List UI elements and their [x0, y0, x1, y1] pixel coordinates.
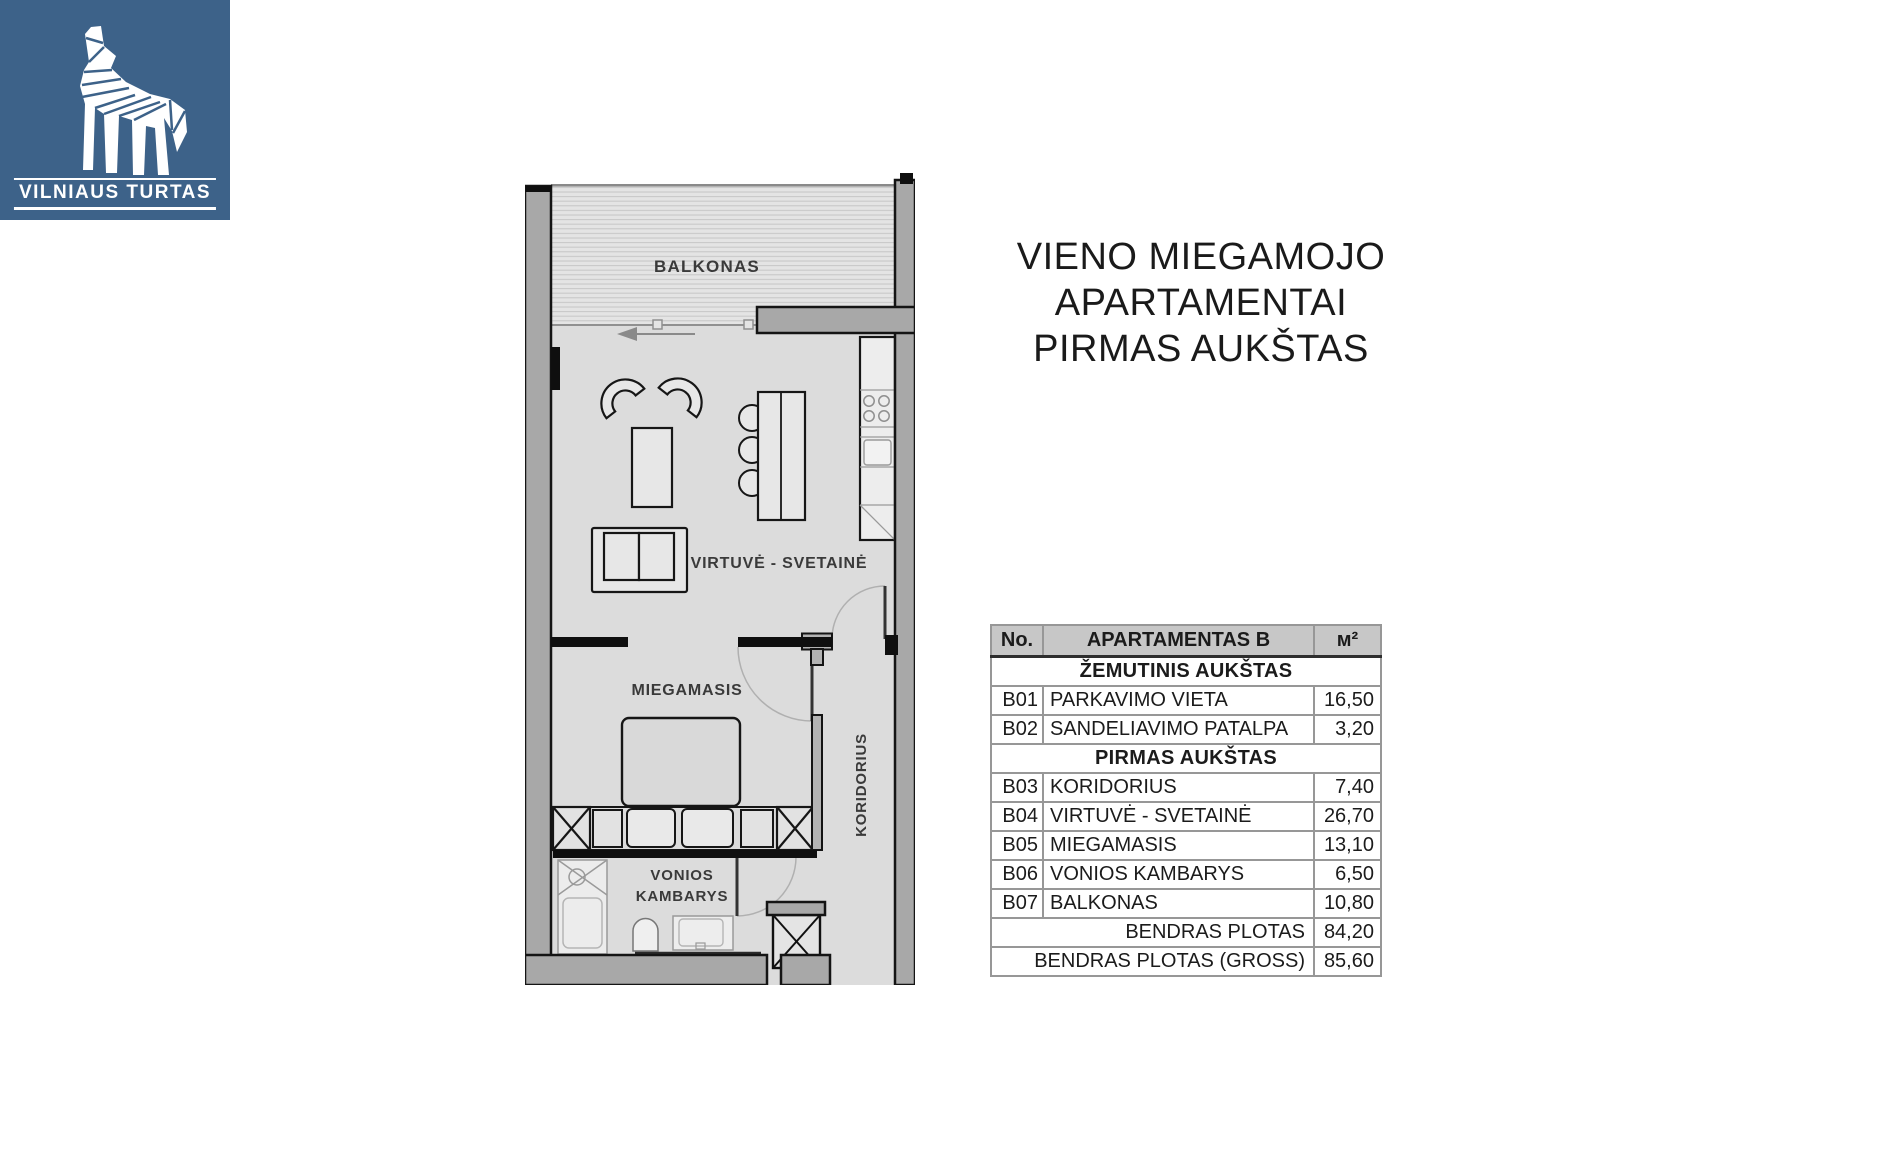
area-table-body: No.APARTAMENTAS Bм²ŽEMUTINIS AUKŠTASB01P…: [991, 625, 1381, 976]
cell-no: B01: [991, 686, 1043, 715]
room-label-kitchen-living: VIRTUVĖ - SVETAINĖ: [691, 554, 868, 572]
pillow: [682, 809, 733, 847]
shower-icon: [558, 860, 607, 954]
total-value: 84,20: [1314, 918, 1381, 947]
room-label-balcony: BALKONAS: [654, 257, 760, 276]
nightstand: [741, 810, 773, 847]
left-wall: [525, 186, 551, 985]
bed: [622, 718, 740, 806]
sofa: [592, 528, 687, 592]
table-row: B02SANDELIAVIMO PATALPA3,20: [991, 715, 1381, 744]
cell-name: KORIDORIUS: [1043, 773, 1314, 802]
cell-area: 16,50: [1314, 686, 1381, 715]
cell-area: 6,50: [1314, 860, 1381, 889]
col-header-m2: м²: [1314, 625, 1381, 657]
section-row: PIRMAS AUKŠTAS: [991, 744, 1381, 773]
cell-area: 10,80: [1314, 889, 1381, 918]
toilet-icon: [633, 919, 658, 952]
cell-name: BALKONAS: [1043, 889, 1314, 918]
cell-area: 13,10: [1314, 831, 1381, 860]
right-wall: [895, 180, 915, 985]
cell-name: MIEGAMASIS: [1043, 831, 1314, 860]
total-label: BENDRAS PLOTAS: [991, 918, 1314, 947]
cell-no: B05: [991, 831, 1043, 860]
cell-name: PARKAVIMO VIETA: [1043, 686, 1314, 715]
cell-name: VIRTUVĖ - SVETAINĖ: [1043, 802, 1314, 831]
company-logo: VILNIAUS TURTAS: [0, 0, 230, 220]
title-line-1: VIENO MIEGAMOJO: [956, 234, 1446, 280]
cell-no: B07: [991, 889, 1043, 918]
cell-no: B02: [991, 715, 1043, 744]
table-row: B04VIRTUVĖ - SVETAINĖ26,70: [991, 802, 1381, 831]
room-label-bedroom: MIEGAMASIS: [631, 682, 742, 699]
table-row: B07BALKONAS10,80: [991, 889, 1381, 918]
section-label: ŽEMUTINIS AUKŠTAS: [991, 657, 1381, 687]
table-row: B05MIEGAMASIS13,10: [991, 831, 1381, 860]
total-value: 85,60: [1314, 947, 1381, 976]
cell-area: 26,70: [1314, 802, 1381, 831]
coffee-table: [632, 428, 672, 507]
col-header-apartment: APARTAMENTAS B: [1043, 625, 1314, 657]
cell-area: 7,40: [1314, 773, 1381, 802]
room-label-bathroom-1: VONIOS: [650, 867, 713, 884]
total-row: BENDRAS PLOTAS84,20: [991, 918, 1381, 947]
table-row: B01PARKAVIMO VIETA16,50: [991, 686, 1381, 715]
total-row: BENDRAS PLOTAS (GROSS)85,60: [991, 947, 1381, 976]
cell-area: 3,20: [1314, 715, 1381, 744]
section-row: ŽEMUTINIS AUKŠTAS: [991, 657, 1381, 687]
cell-no: B04: [991, 802, 1043, 831]
brand-name: VILNIAUS TURTAS: [14, 178, 216, 210]
total-label: BENDRAS PLOTAS (GROSS): [991, 947, 1314, 976]
cell-name: SANDELIAVIMO PATALPA: [1043, 715, 1314, 744]
title-line-3: PIRMAS AUKŠTAS: [956, 326, 1446, 372]
floor-plan: BALKONAS VIRTUVĖ - SVETAINĖ MIEGAMASIS V…: [525, 150, 915, 985]
title-line-2: APARTAMENTAI: [956, 280, 1446, 326]
page: { "logo": { "brand": "VILNIAUS TURTAS", …: [0, 0, 1900, 1165]
pillow: [627, 809, 675, 847]
nightstand: [593, 810, 622, 847]
bath-sink-icon: [673, 916, 733, 950]
page-title: VIENO MIEGAMOJO APARTAMENTAI PIRMAS AUKŠ…: [956, 234, 1446, 372]
cell-no: B03: [991, 773, 1043, 802]
table-row: B06VONIOS KAMBARYS6,50: [991, 860, 1381, 889]
col-header-no: No.: [991, 625, 1043, 657]
room-label-bathroom-2: KAMBARYS: [636, 888, 729, 905]
window-marker: [551, 347, 560, 390]
table-header-row: No.APARTAMENTAS Bм²: [991, 625, 1381, 657]
area-table: No.APARTAMENTAS Bм²ŽEMUTINIS AUKŠTASB01P…: [990, 624, 1382, 977]
balcony-area: [551, 184, 895, 325]
kitchen-counter: [860, 337, 895, 540]
cell-name: VONIOS KAMBARYS: [1043, 860, 1314, 889]
table-row: B03KORIDORIUS7,40: [991, 773, 1381, 802]
room-label-corridor: KORIDORIUS: [853, 733, 870, 837]
kitchen-sink-icon: [864, 440, 891, 465]
section-label: PIRMAS AUKŠTAS: [991, 744, 1381, 773]
cell-no: B06: [991, 860, 1043, 889]
